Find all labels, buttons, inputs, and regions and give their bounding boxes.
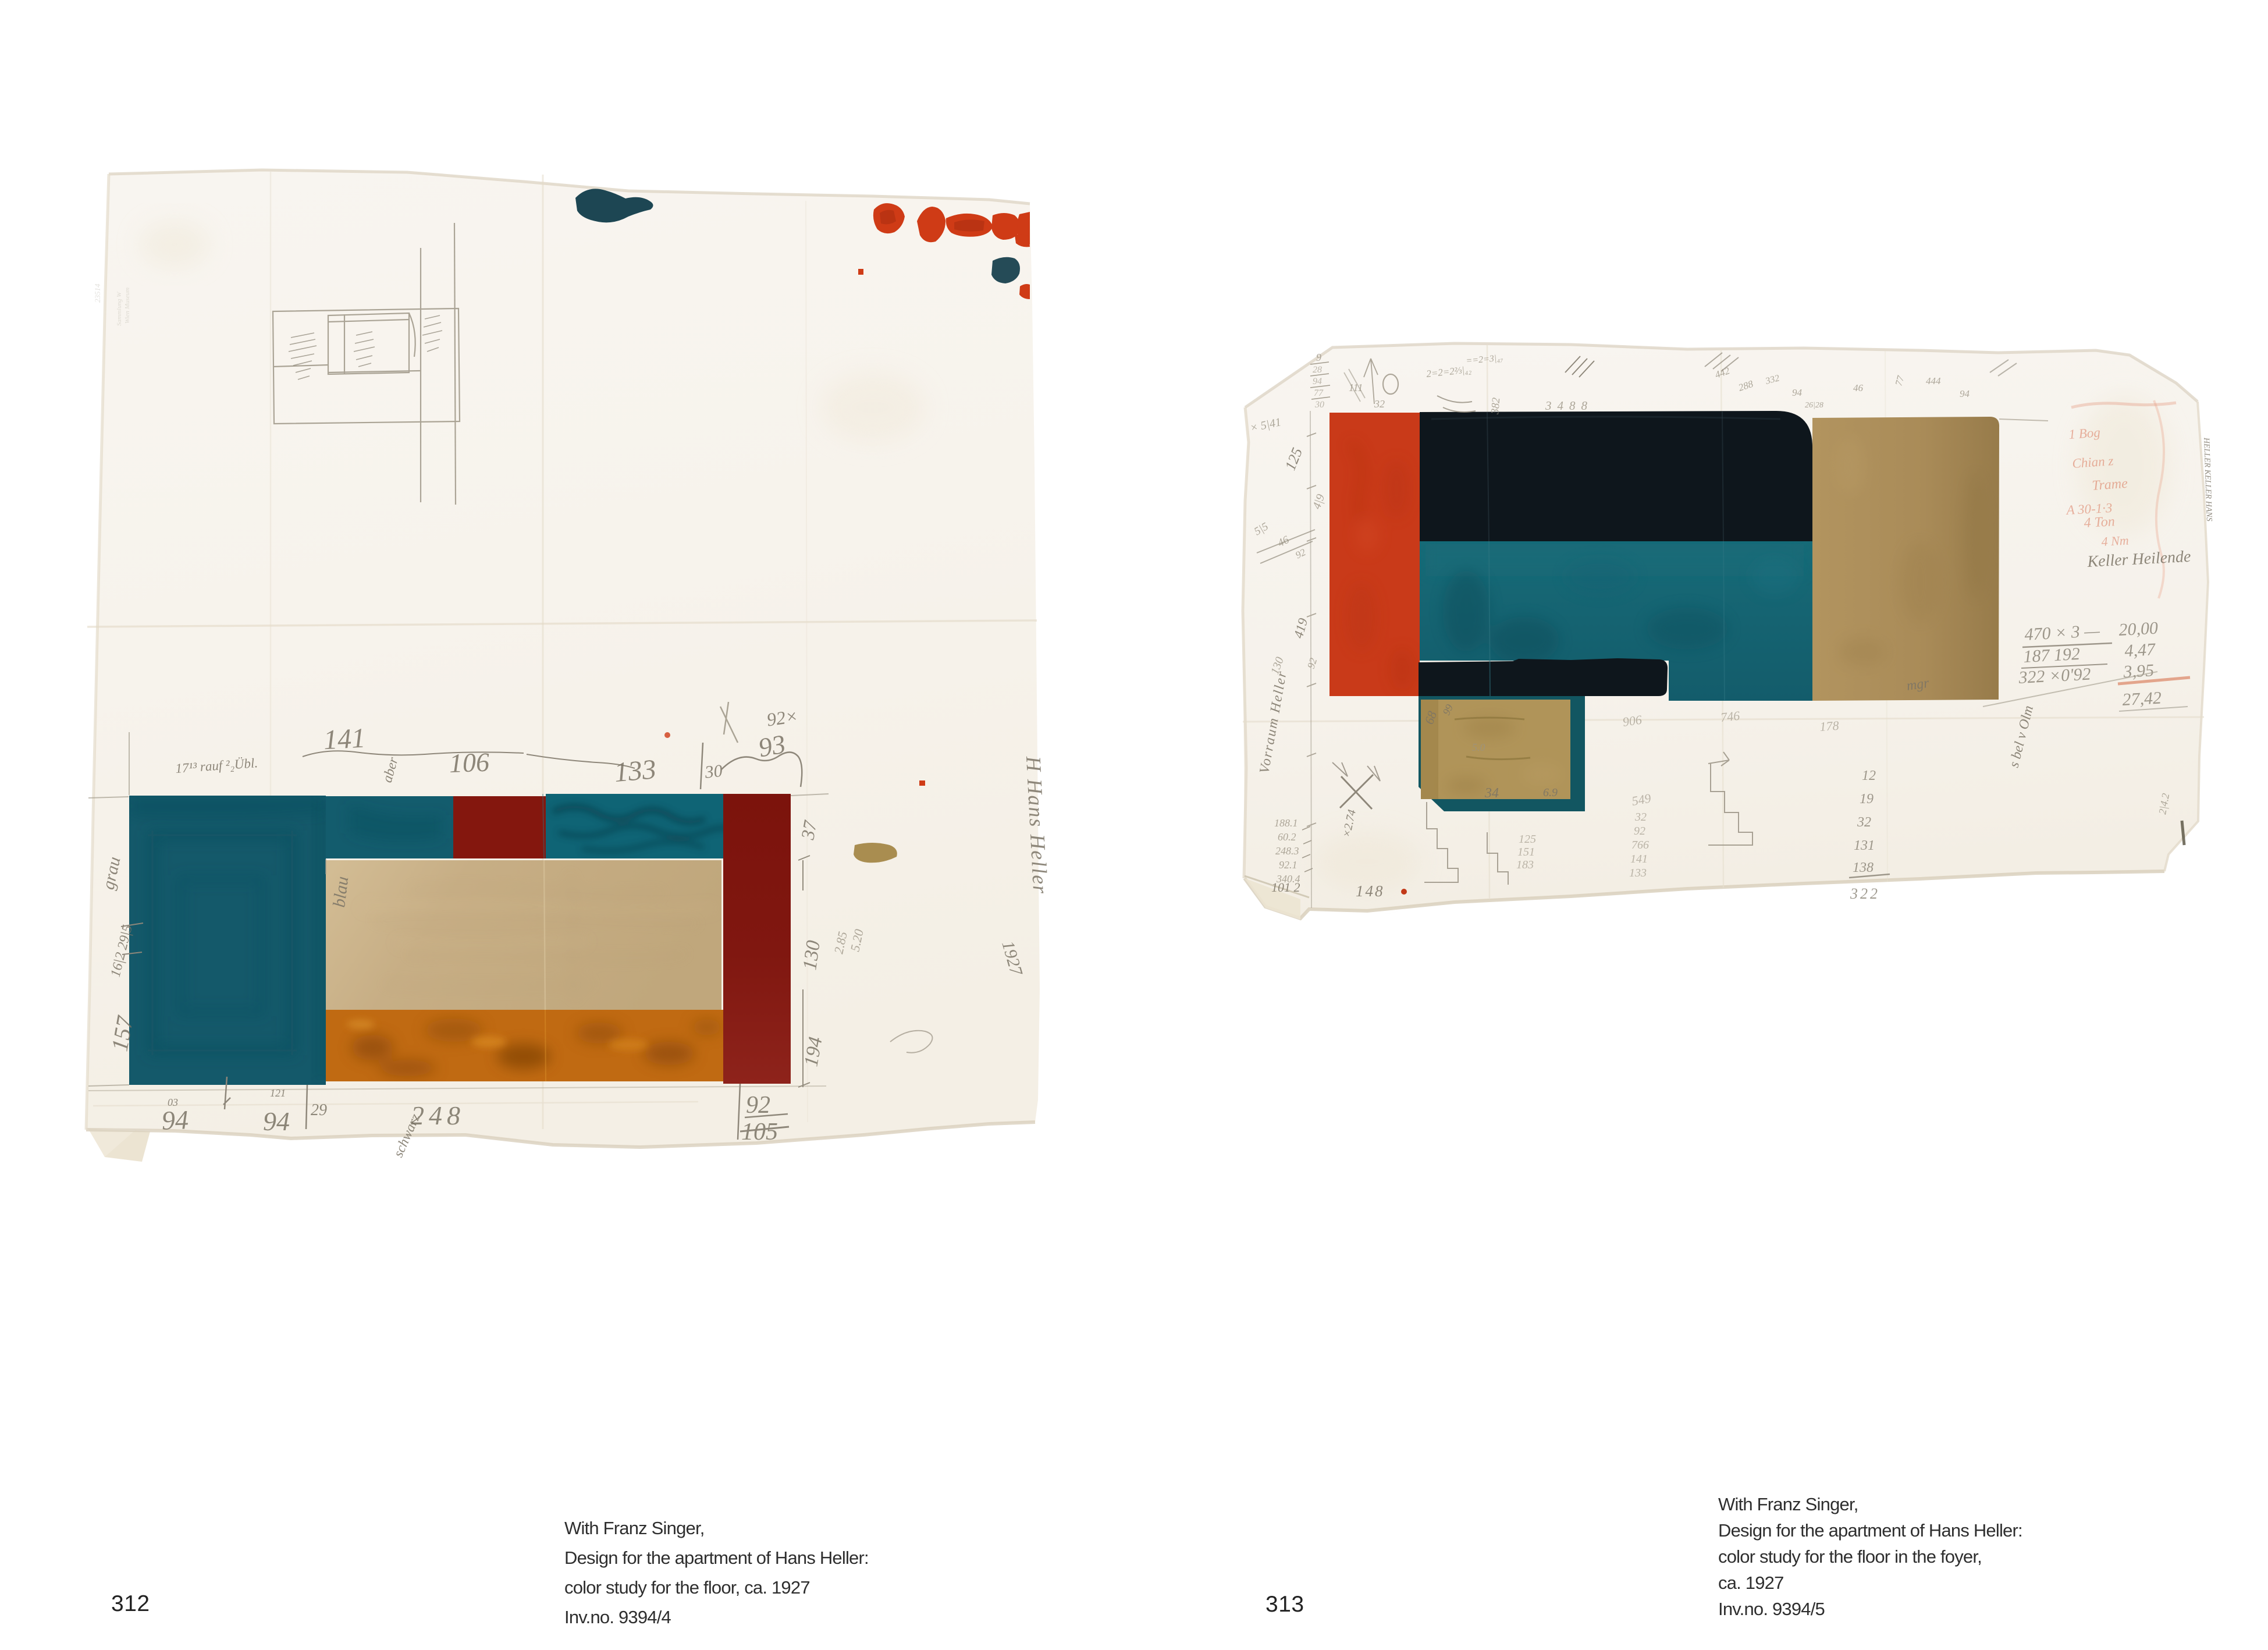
svg-text:444: 444: [1926, 375, 1941, 386]
svg-text:382: 382: [1489, 397, 1503, 416]
svg-text:32: 32: [1374, 398, 1385, 410]
svg-text:105: 105: [741, 1119, 778, 1145]
svg-text:188.1: 188.1: [1274, 817, 1298, 829]
svg-text:77: 77: [1314, 388, 1324, 398]
svg-text:322 ×0'92: 322 ×0'92: [2018, 665, 2092, 688]
svg-text:4 Nm: 4 Nm: [2101, 533, 2129, 549]
svg-text:92.1: 92.1: [1279, 859, 1297, 871]
svg-text:34: 34: [1484, 786, 1499, 801]
svg-text:3488: 3488: [1545, 399, 1593, 413]
svg-text:6.9: 6.9: [1543, 786, 1558, 799]
svg-text:4,47: 4,47: [2124, 640, 2157, 661]
svg-text:mgr: mgr: [1906, 676, 1931, 694]
svg-text:151: 151: [1517, 846, 1535, 858]
svg-text:Wien Museum: Wien Museum: [124, 288, 131, 324]
svg-text:Chian z: Chian z: [2072, 453, 2114, 471]
svg-text:178: 178: [1819, 718, 1840, 734]
svg-text:Trame: Trame: [2092, 476, 2128, 494]
svg-text:92×: 92×: [765, 705, 799, 730]
svg-text:3,95: 3,95: [2123, 661, 2155, 682]
svg-text:248: 248: [411, 1101, 465, 1130]
svg-text:28: 28: [1313, 365, 1322, 375]
svg-text:248.3: 248.3: [1275, 845, 1299, 857]
svg-text:746: 746: [1720, 708, 1740, 725]
svg-text:12: 12: [1862, 768, 1876, 783]
svg-text:94: 94: [161, 1105, 189, 1136]
svg-text:30: 30: [703, 761, 723, 782]
svg-text:94: 94: [263, 1106, 290, 1136]
svg-text:94: 94: [1960, 388, 1970, 399]
svg-text:26|28: 26|28: [1805, 401, 1823, 410]
svg-text:183: 183: [1516, 858, 1534, 871]
svg-text:4 Ton: 4 Ton: [2084, 514, 2115, 531]
svg-text:125: 125: [1519, 833, 1536, 846]
svg-text:130: 130: [799, 939, 824, 971]
svg-text:Sammlung W: Sammlung W: [116, 292, 123, 326]
svg-text:138: 138: [1853, 860, 1874, 875]
svg-text:94: 94: [1313, 377, 1322, 386]
svg-text:106: 106: [449, 747, 490, 778]
svg-text:111: 111: [1349, 382, 1363, 393]
svg-text:93: 93: [756, 729, 788, 762]
svg-text:20,00: 20,00: [2118, 619, 2159, 640]
svg-text:30: 30: [1314, 400, 1324, 410]
svg-text:5.0: 5.0: [1472, 741, 1485, 753]
svg-text:187 192: 187 192: [2023, 644, 2081, 666]
svg-text:60.2: 60.2: [1278, 831, 1296, 843]
svg-text:121: 121: [270, 1087, 286, 1099]
svg-text:32: 32: [1857, 815, 1871, 830]
svg-text:1 Bog: 1 Bog: [2068, 425, 2101, 442]
svg-text:133: 133: [613, 754, 657, 788]
svg-text:101 2: 101 2: [1271, 880, 1300, 895]
svg-text:148: 148: [1356, 882, 1385, 900]
svg-text:94: 94: [1792, 387, 1803, 398]
svg-text:46: 46: [1853, 382, 1864, 393]
svg-text:92: 92: [1634, 825, 1645, 838]
svg-text:133: 133: [1629, 867, 1647, 879]
svg-text:766: 766: [1631, 839, 1649, 851]
svg-text:906: 906: [1622, 712, 1643, 729]
svg-text:blau: blau: [329, 875, 352, 909]
svg-text:19: 19: [1860, 792, 1874, 807]
svg-text:9: 9: [1316, 352, 1321, 363]
svg-text:141: 141: [1630, 853, 1648, 865]
svg-text:92: 92: [746, 1092, 770, 1119]
svg-text:27,42: 27,42: [2122, 689, 2162, 709]
svg-text:131: 131: [1854, 838, 1875, 853]
svg-text:23514: 23514: [93, 283, 102, 303]
svg-text:32: 32: [1634, 811, 1647, 824]
svg-text:29: 29: [311, 1101, 327, 1119]
svg-text:470 × 3 —: 470 × 3 —: [2024, 621, 2100, 644]
svg-text:322: 322: [1850, 885, 1880, 902]
